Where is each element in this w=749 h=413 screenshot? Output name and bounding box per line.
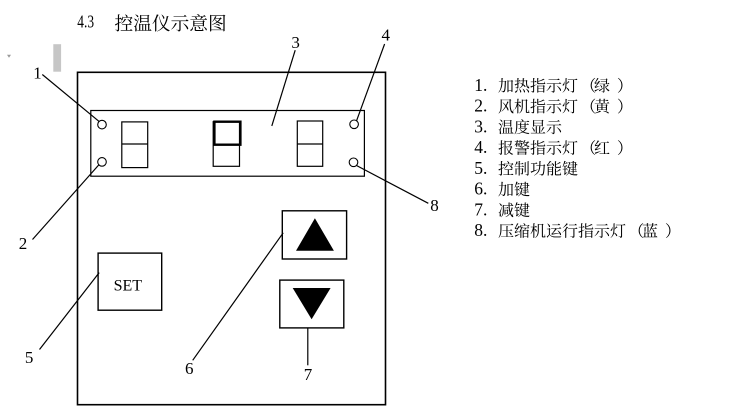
svg-text:4.: 4. xyxy=(474,137,487,157)
svg-text:6: 6 xyxy=(185,359,194,378)
svg-text:4: 4 xyxy=(382,25,391,44)
svg-text:5.: 5. xyxy=(474,158,487,178)
svg-text:6.: 6. xyxy=(474,179,487,199)
svg-text:SET: SET xyxy=(114,278,143,295)
svg-text:1: 1 xyxy=(33,64,42,83)
svg-text:8.: 8. xyxy=(474,220,487,240)
svg-text:2.: 2. xyxy=(474,96,487,116)
svg-text:4.3: 4.3 xyxy=(77,12,94,32)
svg-text:3: 3 xyxy=(291,33,300,52)
svg-text:2: 2 xyxy=(19,234,28,253)
svg-text:5: 5 xyxy=(25,348,34,367)
svg-text:7.: 7. xyxy=(474,199,487,219)
svg-text:1.: 1. xyxy=(474,75,487,95)
svg-text:7: 7 xyxy=(304,365,313,384)
svg-text:8: 8 xyxy=(430,196,439,215)
svg-text:3.: 3. xyxy=(474,116,487,136)
